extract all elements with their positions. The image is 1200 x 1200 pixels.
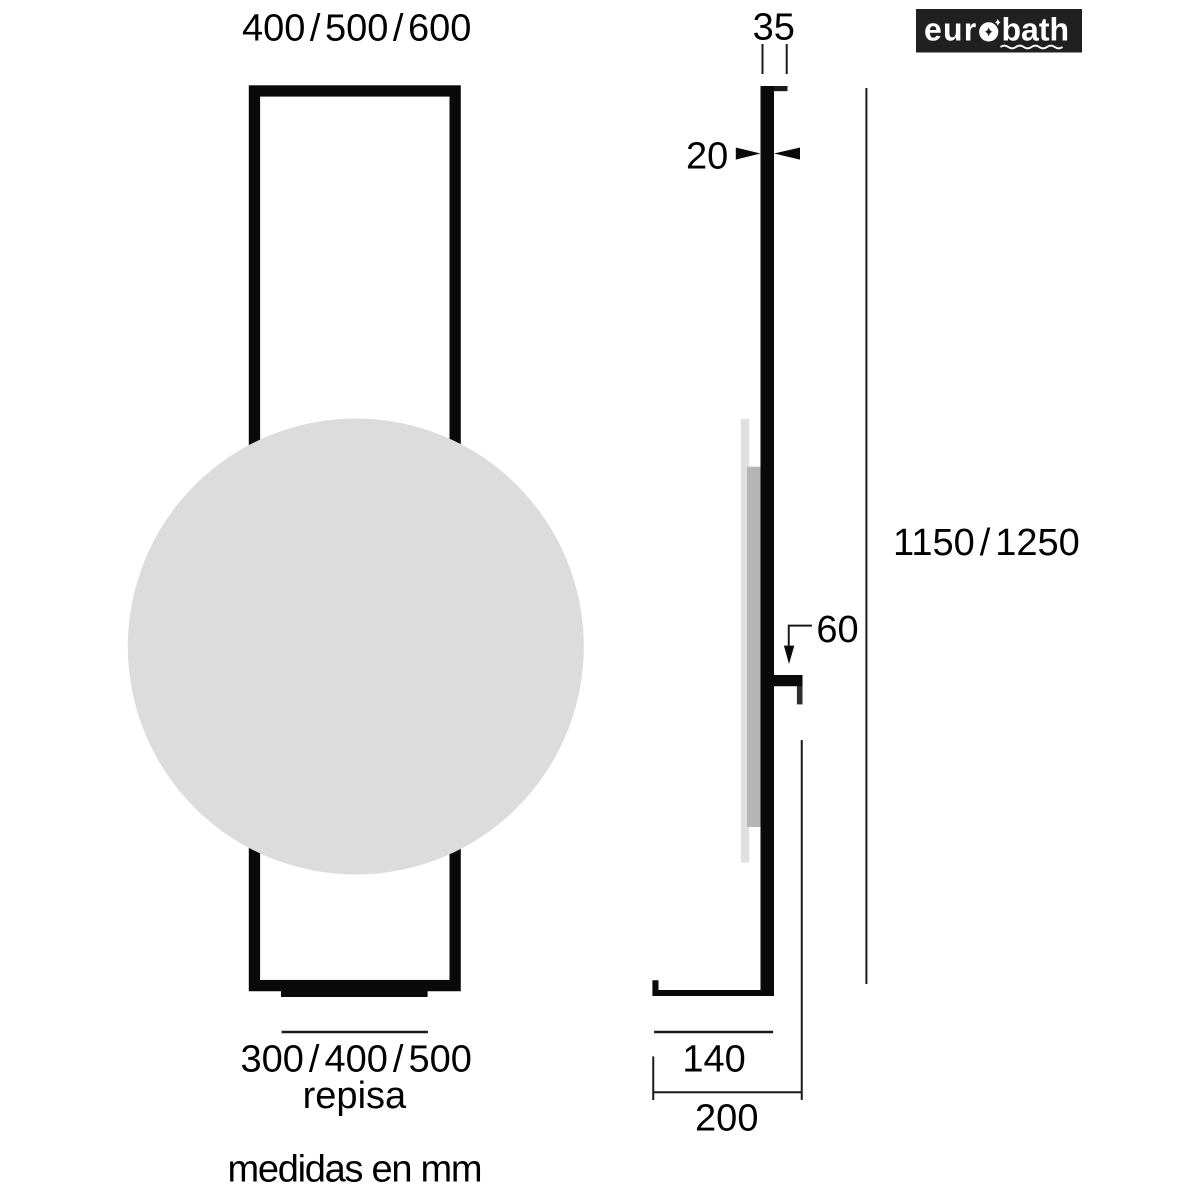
svg-text:300/400/500: 300/400/500: [241, 1038, 472, 1080]
svg-text:35: 35: [753, 6, 795, 48]
svg-text:medidas en mm: medidas en mm: [228, 1148, 483, 1190]
svg-text:bath: bath: [1002, 11, 1070, 47]
svg-text:140: 140: [682, 1039, 745, 1081]
svg-text:20: 20: [686, 135, 728, 177]
svg-text:200: 200: [695, 1097, 758, 1139]
svg-text:400/500/600: 400/500/600: [242, 8, 471, 50]
svg-text:eur: eur: [924, 11, 977, 47]
svg-text:60: 60: [816, 609, 858, 651]
svg-text:repisa: repisa: [303, 1075, 407, 1117]
svg-text:1150/1250: 1150/1250: [893, 522, 1080, 564]
